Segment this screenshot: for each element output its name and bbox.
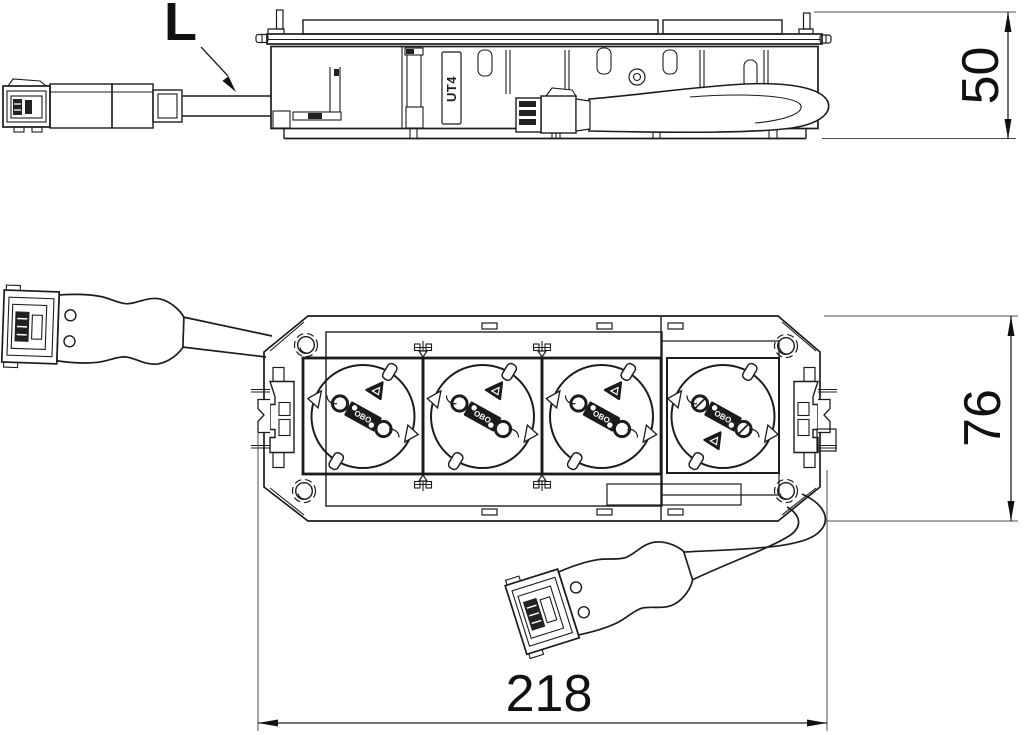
power-plug-top-left <box>2 285 185 373</box>
arrow-left-icon <box>258 720 278 727</box>
levelling-pin-right <box>804 13 811 29</box>
mounting-latch-right <box>794 368 837 468</box>
internal-plug-side <box>516 88 590 139</box>
arrow-down-icon <box>1005 119 1012 139</box>
screw-slot <box>738 424 749 435</box>
levelling-pin-left <box>277 10 284 29</box>
approval-triangle-icon <box>486 382 508 403</box>
callout-l: L <box>164 0 236 92</box>
corner-screw-tr <box>775 335 798 358</box>
retaining-clip <box>415 341 432 357</box>
dimension-76: 76 <box>824 316 1018 521</box>
retaining-clip <box>534 341 551 357</box>
cable-loop <box>589 84 829 133</box>
approval-triangle-icon <box>605 382 627 403</box>
corner-screw-tl <box>295 334 318 357</box>
screw-boss <box>629 69 645 85</box>
leader-line <box>201 47 228 76</box>
arrow-down-icon <box>1008 501 1015 521</box>
cable-right <box>684 494 825 552</box>
plan-view: OBO OBO OBO OBO <box>182 316 837 580</box>
retaining-clip <box>534 475 551 491</box>
dim-value-height: 50 <box>952 47 1010 105</box>
technical-drawing-page: UT4 L 50 <box>0 0 1024 735</box>
power-plug-bottom-right <box>504 527 701 659</box>
corner-screw-bl <box>293 480 316 503</box>
arrow-up-icon <box>1008 316 1015 336</box>
approval-triangle-icon <box>704 432 726 453</box>
approval-triangle-icon <box>366 382 388 403</box>
top-plate-left <box>303 20 658 34</box>
arrow-right-icon <box>807 720 827 727</box>
cable-left <box>183 317 272 336</box>
insert-label: UT4 <box>444 76 459 102</box>
top-plate-right <box>663 20 782 34</box>
socket-unit-drawing: UT4 L 50 <box>0 0 1024 735</box>
callout-label: L <box>164 0 197 52</box>
mounting-latch-left <box>251 368 294 468</box>
retaining-clip <box>415 475 432 491</box>
dimension-50: 50 <box>814 12 1016 139</box>
dim-value-depth: 76 <box>954 389 1012 447</box>
dim-value-length: 218 <box>506 665 593 723</box>
corner-screw-br <box>775 480 798 503</box>
arrow-up-icon <box>1005 12 1012 32</box>
leader-arrow-icon <box>223 76 237 92</box>
side-view: UT4 <box>3 10 831 139</box>
